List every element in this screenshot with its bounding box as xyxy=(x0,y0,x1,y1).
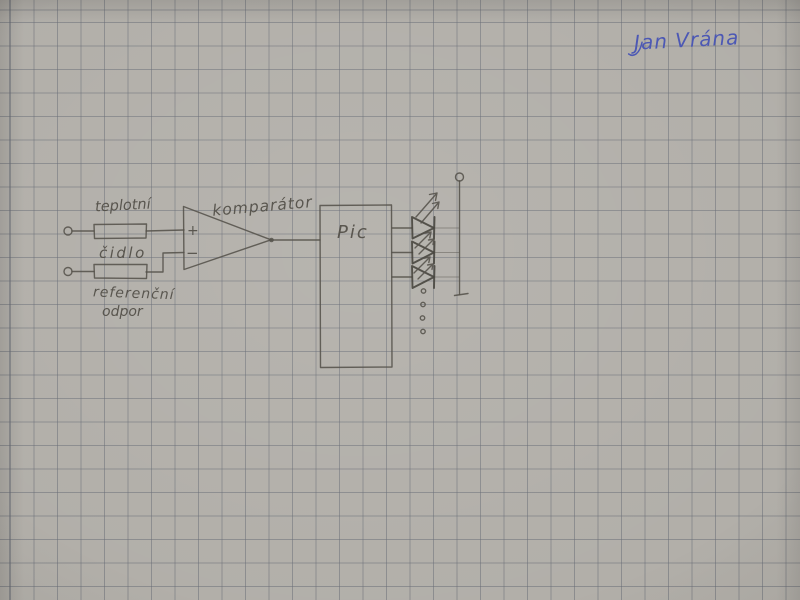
circuit-schematic: teplotní čidlo referenční odpor + − komp… xyxy=(0,0,800,600)
label-temperature-line2: čidlo xyxy=(99,244,147,262)
input-terminal-top xyxy=(64,227,72,235)
input-terminal-bottom xyxy=(64,268,72,276)
resistor-temperature-sensor xyxy=(72,224,184,239)
label-reference-line2: odpor xyxy=(102,304,144,320)
comparator-minus-input: − xyxy=(186,244,199,262)
author-signature: Jan Vrána xyxy=(627,25,739,55)
more-leds-ellipsis-dots xyxy=(420,289,425,334)
label-comparator: komparátor xyxy=(212,193,315,220)
label-reference-line1: referenční xyxy=(93,284,176,303)
led-symbol-3 xyxy=(412,257,459,288)
signature-text: Jan Vrána xyxy=(629,25,739,55)
graph-paper-photo: teplotní čidlo referenční odpor + − komp… xyxy=(0,0,800,600)
led-symbol-1 xyxy=(412,193,459,239)
comparator-plus-input: + xyxy=(187,223,199,239)
mcu-output-wires xyxy=(392,228,413,277)
led-emission-arrows-1 xyxy=(416,193,439,223)
label-temperature-line1: teplotní xyxy=(95,196,153,215)
label-mcu: Pic xyxy=(337,222,369,243)
led-symbol-2 xyxy=(412,232,459,264)
